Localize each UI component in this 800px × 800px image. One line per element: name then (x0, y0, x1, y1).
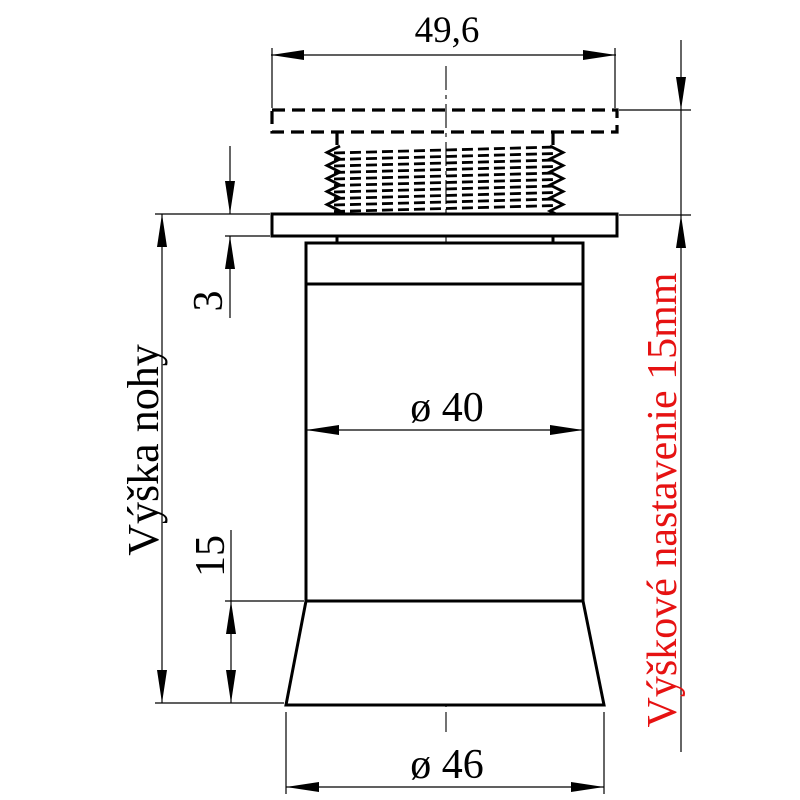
thread-crest-line (334, 173, 556, 179)
label-height-adjustment: Výškové nastavenie 15mm (640, 272, 686, 727)
dimension-base-cone-height: 15 (188, 530, 304, 703)
thread-crest-line (334, 186, 556, 192)
thread-crest-line (334, 147, 556, 153)
arrowhead-up (226, 601, 236, 634)
dimension-base-diameter: ø 46 (286, 712, 604, 794)
thread-crest-line (334, 160, 556, 166)
thread-crest-line (334, 193, 556, 199)
base-cone-outline (286, 601, 604, 705)
dim-cone-height-label: 15 (188, 535, 234, 577)
arrowhead-down (225, 181, 235, 214)
dim-top-plate-width-label: 49,6 (415, 10, 480, 51)
arrowhead-down (226, 670, 236, 703)
dimension-top-plate-width: 49,6 (271, 10, 616, 108)
thread-crest-line (334, 199, 556, 205)
arrowhead-left (286, 782, 319, 792)
technical-drawing-adjustable-leg: 49,6 Výškové nastavenie 15mm Výška nohy (0, 0, 800, 800)
flange-plate-outline (272, 214, 617, 236)
thread-crest-line (334, 154, 556, 160)
drawing-canvas: 49,6 Výškové nastavenie 15mm Výška nohy (0, 0, 800, 800)
dim-body-diameter-label: ø 40 (410, 385, 484, 431)
mounting-plate-hidden-outline (272, 110, 617, 132)
arrowhead-up (676, 215, 686, 248)
arrowhead-right (583, 50, 616, 60)
arrowhead-up (157, 214, 167, 247)
arrowhead-up (225, 236, 235, 269)
thread-crest-line (334, 180, 556, 186)
dimension-flange-thickness: 3 (186, 146, 270, 318)
thread-crest-line (334, 167, 556, 173)
arrowhead-down (157, 670, 167, 703)
label-leg-height: Výška nohy (119, 344, 168, 555)
arrowhead-down (676, 77, 686, 110)
thread-crest-line (334, 206, 556, 212)
dimension-height-adjustment: Výškové nastavenie 15mm (619, 40, 691, 752)
thread-section (327, 146, 563, 214)
dim-base-diameter-label: ø 46 (410, 742, 484, 788)
dimension-leg-height: Výška nohy (119, 214, 284, 703)
dim-flange-thickness-label: 3 (186, 291, 232, 312)
arrowhead-left (271, 50, 304, 60)
arrowhead-right (571, 782, 604, 792)
